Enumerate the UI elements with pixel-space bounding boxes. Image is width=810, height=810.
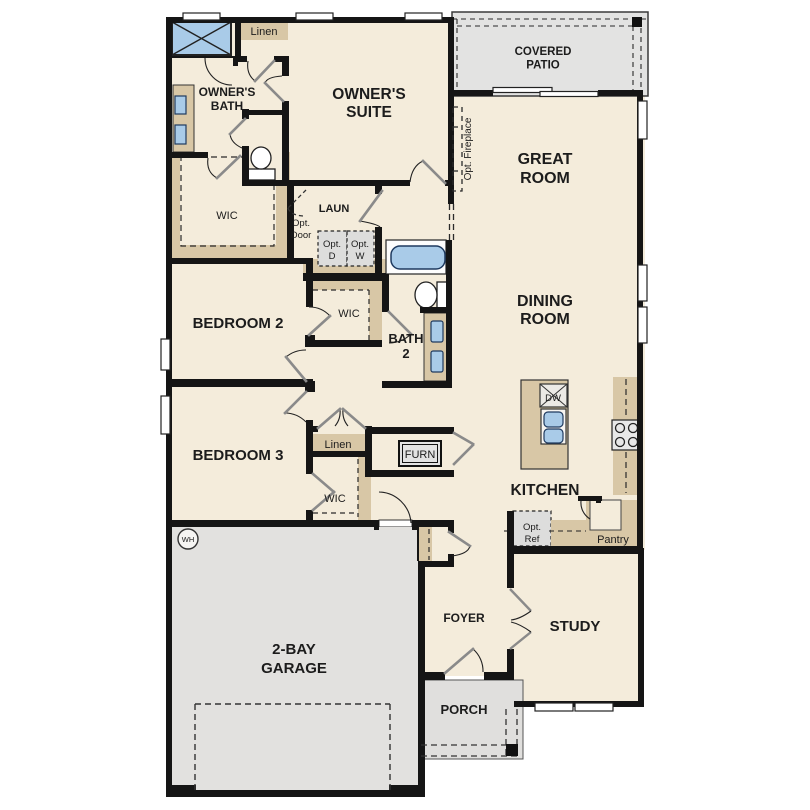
svg-text:STUDY: STUDY [550, 618, 601, 635]
svg-text:WIC: WIC [324, 493, 345, 505]
svg-text:D: D [329, 251, 336, 262]
svg-text:FOYER: FOYER [443, 611, 485, 625]
svg-text:KITCHEN: KITCHEN [511, 482, 580, 499]
svg-text:W: W [356, 251, 365, 262]
svg-text:BATH: BATH [211, 99, 243, 113]
svg-text:Opt.: Opt. [351, 239, 369, 250]
svg-text:PORCH: PORCH [441, 702, 488, 717]
svg-text:Door: Door [291, 230, 312, 241]
svg-text:BEDROOM 2: BEDROOM 2 [193, 315, 284, 332]
svg-text:OWNER'S: OWNER'S [332, 86, 405, 103]
svg-text:WIC: WIC [216, 210, 237, 222]
svg-text:Opt.: Opt. [292, 218, 310, 229]
svg-text:ROOM: ROOM [520, 170, 570, 187]
svg-text:BATH: BATH [388, 331, 423, 346]
svg-text:SUITE: SUITE [346, 104, 392, 121]
svg-text:Ref: Ref [525, 534, 540, 545]
svg-text:Opt. Fireplace: Opt. Fireplace [463, 117, 474, 180]
svg-text:DW: DW [545, 393, 561, 404]
svg-text:FURN: FURN [405, 449, 436, 461]
svg-text:LAUN: LAUN [319, 203, 350, 215]
svg-text:Linen: Linen [325, 439, 352, 451]
svg-text:Pantry: Pantry [597, 534, 629, 546]
svg-text:BEDROOM 3: BEDROOM 3 [193, 447, 284, 464]
svg-text:GREAT: GREAT [518, 151, 573, 168]
svg-text:Linen: Linen [251, 26, 278, 38]
svg-text:PATIO: PATIO [526, 60, 559, 72]
svg-text:Opt.: Opt. [323, 239, 341, 250]
svg-text:WH: WH [182, 535, 195, 544]
svg-text:Opt.: Opt. [523, 522, 541, 533]
svg-text:GARAGE: GARAGE [261, 660, 327, 677]
svg-text:2: 2 [402, 346, 409, 361]
svg-text:DINING: DINING [517, 293, 573, 310]
svg-text:OWNER'S: OWNER'S [199, 85, 256, 99]
svg-text:WIC: WIC [338, 308, 359, 320]
svg-text:ROOM: ROOM [520, 311, 570, 328]
svg-text:2-BAY: 2-BAY [272, 641, 316, 658]
svg-text:COVERED: COVERED [515, 46, 572, 58]
